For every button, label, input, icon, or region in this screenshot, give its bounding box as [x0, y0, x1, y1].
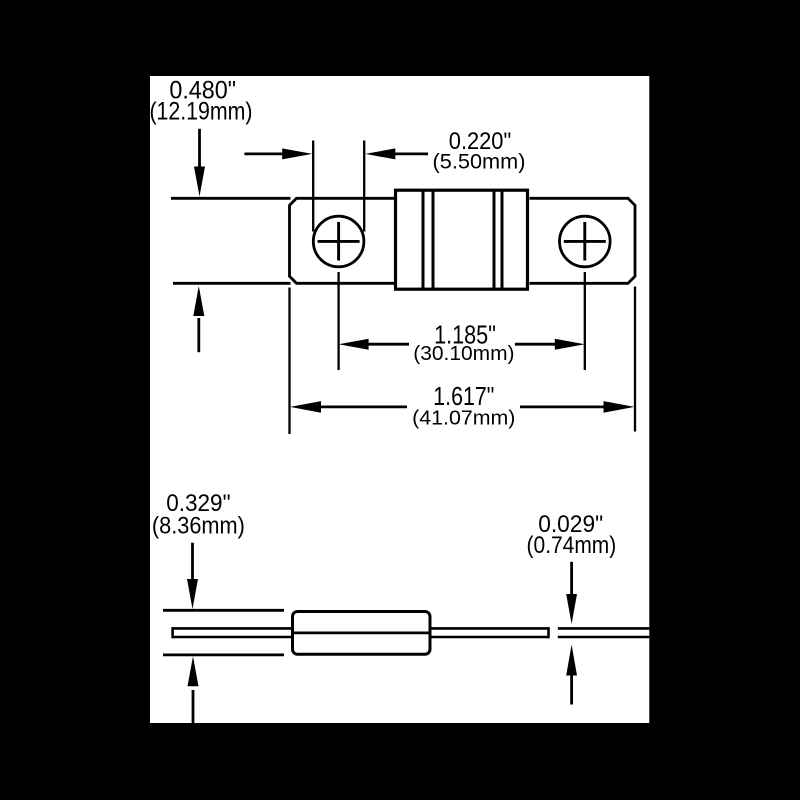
svg-text:(12.19mm): (12.19mm): [149, 97, 252, 125]
svg-text:(5.50mm): (5.50mm): [433, 150, 526, 173]
svg-text:1.617": 1.617": [433, 381, 494, 411]
svg-text:(8.36mm): (8.36mm): [152, 514, 245, 540]
svg-text:(41.07mm): (41.07mm): [412, 408, 515, 430]
svg-text:(30.10mm): (30.10mm): [413, 343, 514, 365]
svg-text:(0.74mm): (0.74mm): [527, 532, 617, 559]
